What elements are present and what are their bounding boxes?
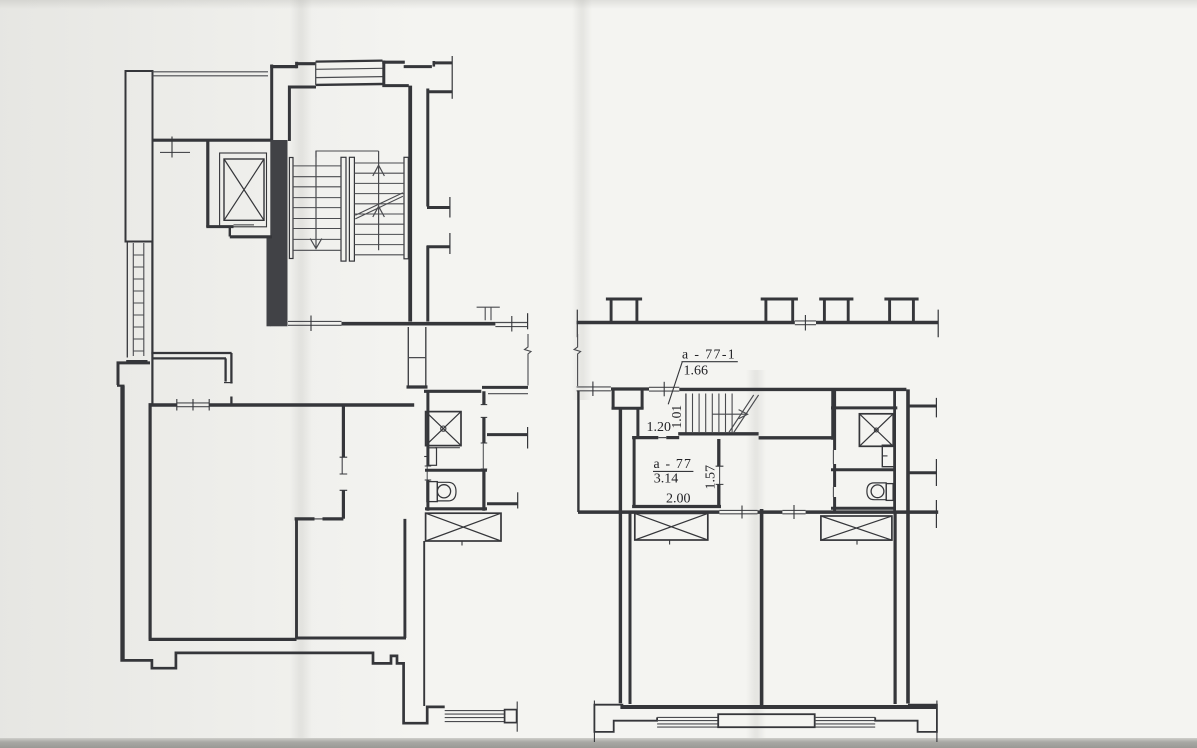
svg-text:1.57: 1.57: [704, 465, 719, 490]
svg-text:2.00: 2.00: [666, 492, 691, 507]
svg-text:a - 77-1: a - 77-1: [682, 347, 736, 362]
svg-text:3.14: 3.14: [654, 472, 679, 487]
svg-text:1.01: 1.01: [669, 405, 684, 429]
svg-text:1.66: 1.66: [684, 363, 709, 378]
svg-text:a - 77: a - 77: [654, 456, 693, 471]
svg-text:1.20: 1.20: [647, 420, 672, 435]
